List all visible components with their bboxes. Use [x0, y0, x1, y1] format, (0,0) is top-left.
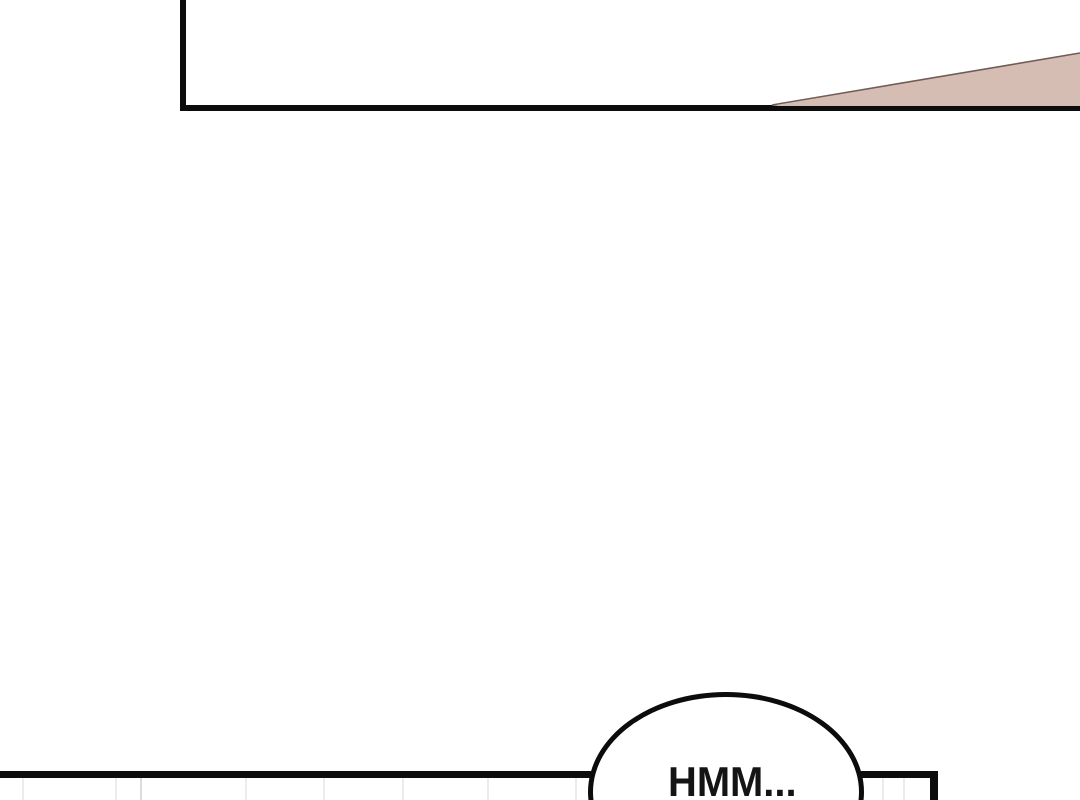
- comic-page: HMM...: [0, 0, 1080, 800]
- plank-line: [22, 778, 24, 800]
- plank-line: [140, 778, 142, 800]
- plank-line: [882, 778, 884, 800]
- plank-line: [402, 778, 404, 800]
- plank-line: [487, 778, 489, 800]
- plank-line: [575, 778, 577, 800]
- plank-line: [115, 778, 117, 800]
- plank-line: [903, 778, 905, 800]
- plank-line: [323, 778, 325, 800]
- speech-bubble-text: HMM...: [668, 761, 797, 800]
- floor-surface: [770, 50, 1080, 106]
- plank-line: [245, 778, 247, 800]
